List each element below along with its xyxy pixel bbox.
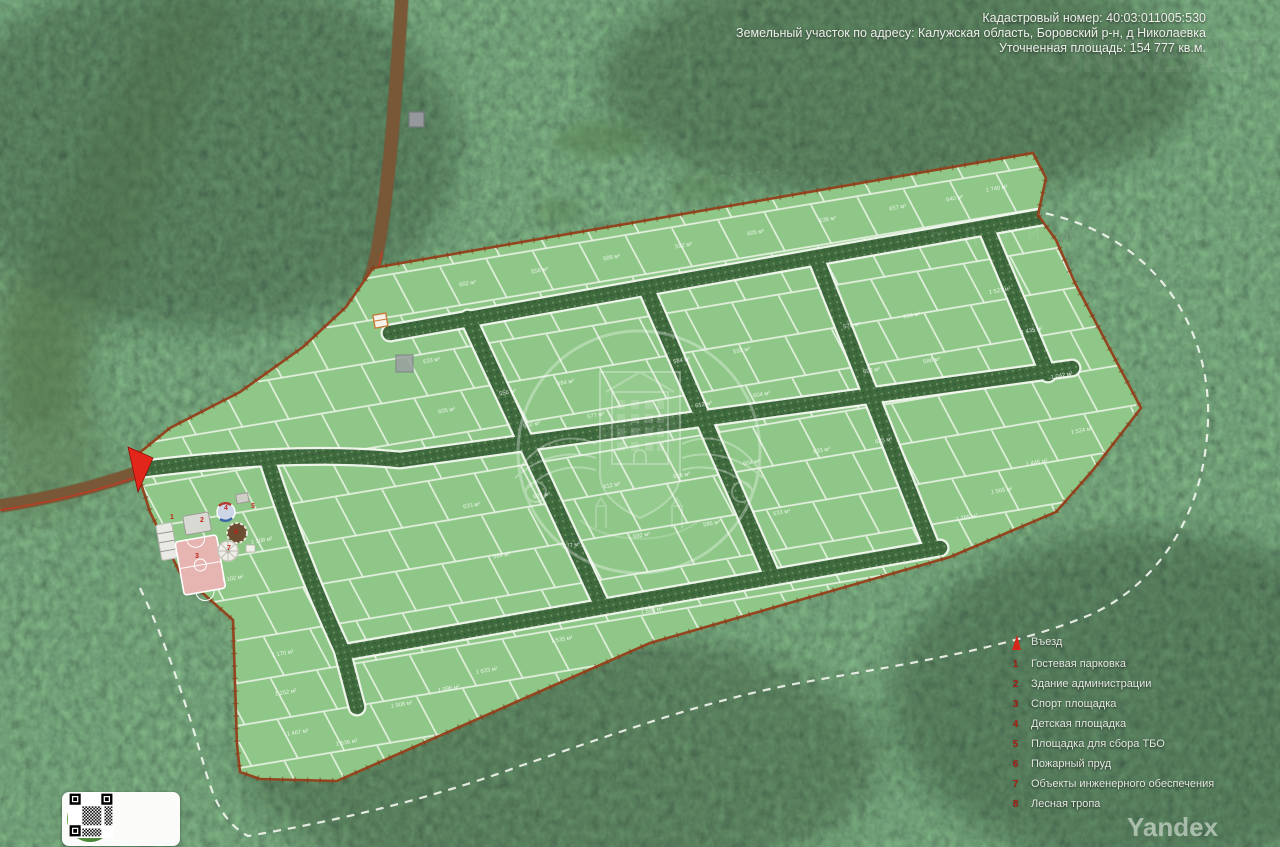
facility-number-marker: 4 [224, 505, 228, 512]
map-legend: Въезд 1Гостевая парковка2Здание админист… [1008, 636, 1214, 818]
legend-entrance-label: Въезд [1031, 636, 1062, 648]
cadastral-number: Кадастровый номер: 40:03:011005:530 [736, 11, 1206, 26]
cadastral-info-block: Кадастровый номер: 40:03:011005:530 Земе… [736, 11, 1206, 56]
legend-item-6: 6Пожарный пруд [1008, 758, 1214, 770]
legend-item-1: 1Гостевая парковка [1008, 658, 1214, 670]
legend-item-label: Пожарный пруд [1031, 758, 1111, 770]
facility-number-marker: 6 [234, 529, 238, 536]
legend-item-number: 8 [1008, 799, 1023, 810]
facility-number-marker: 2 [200, 517, 204, 524]
legend-item-label: Площадка для сбора ТБО [1031, 738, 1165, 750]
facility-number-marker: 1 [170, 514, 174, 521]
legend-item-number: 4 [1008, 719, 1023, 730]
legend-item-3: 3Спорт площадка [1008, 698, 1214, 710]
legend-item-label: Гостевая парковка [1031, 658, 1126, 670]
legend-item-2: 2Здание администрации [1008, 678, 1214, 690]
legend-item-label: Спорт площадка [1031, 698, 1116, 710]
legend-item-label: Детская площадка [1031, 718, 1126, 730]
legend-item-label: Объекты инженерного обеспечения [1031, 778, 1214, 790]
tbo-collection-pad [236, 493, 249, 504]
utility-block-north [409, 112, 424, 127]
legend-item-7: 7Объекты инженерного обеспечения [1008, 778, 1214, 790]
entrance-triangle-icon [1012, 635, 1021, 650]
legend-item-number: 6 [1008, 759, 1023, 770]
legend-item-label: Лесная тропа [1031, 798, 1100, 810]
plot-area-text: Уточненная площадь: 154 777 кв.м. [736, 41, 1206, 56]
facility-number-marker: 7 [227, 545, 231, 552]
legend-item-8: 8Лесная тропа [1008, 798, 1214, 810]
legend-item-label: Здание администрации [1031, 678, 1151, 690]
facility-number-marker: 3 [195, 553, 199, 560]
side-gate [373, 313, 388, 328]
facility-number-marker: 5 [251, 503, 255, 510]
agency-badge: YE's [62, 792, 180, 846]
legend-item-number: 1 [1008, 659, 1023, 670]
map-viewport: 602 м²556 м²588 м²592 м²605 м²638 м²657 … [0, 0, 1280, 847]
legend-item-4: 4Детская площадка [1008, 718, 1214, 730]
qr-code [68, 792, 114, 838]
utility-block-mid [396, 355, 413, 372]
brand-watermark-sub: н е д в и ж и м о с т ь [899, 219, 1272, 246]
legend-item-number: 7 [1008, 779, 1023, 790]
legend-item-5: 5Площадка для сбора ТБО [1008, 738, 1214, 750]
legend-item-number: 3 [1008, 699, 1023, 710]
plot-address: Земельный участок по адресу: Калужская о… [736, 26, 1206, 41]
administration-building [183, 512, 212, 535]
legend-entrance-row: Въезд [1008, 636, 1214, 648]
legend-item-number: 5 [1008, 739, 1023, 750]
yandex-watermark: Yandex [1127, 812, 1218, 843]
legend-item-number: 2 [1008, 679, 1023, 690]
